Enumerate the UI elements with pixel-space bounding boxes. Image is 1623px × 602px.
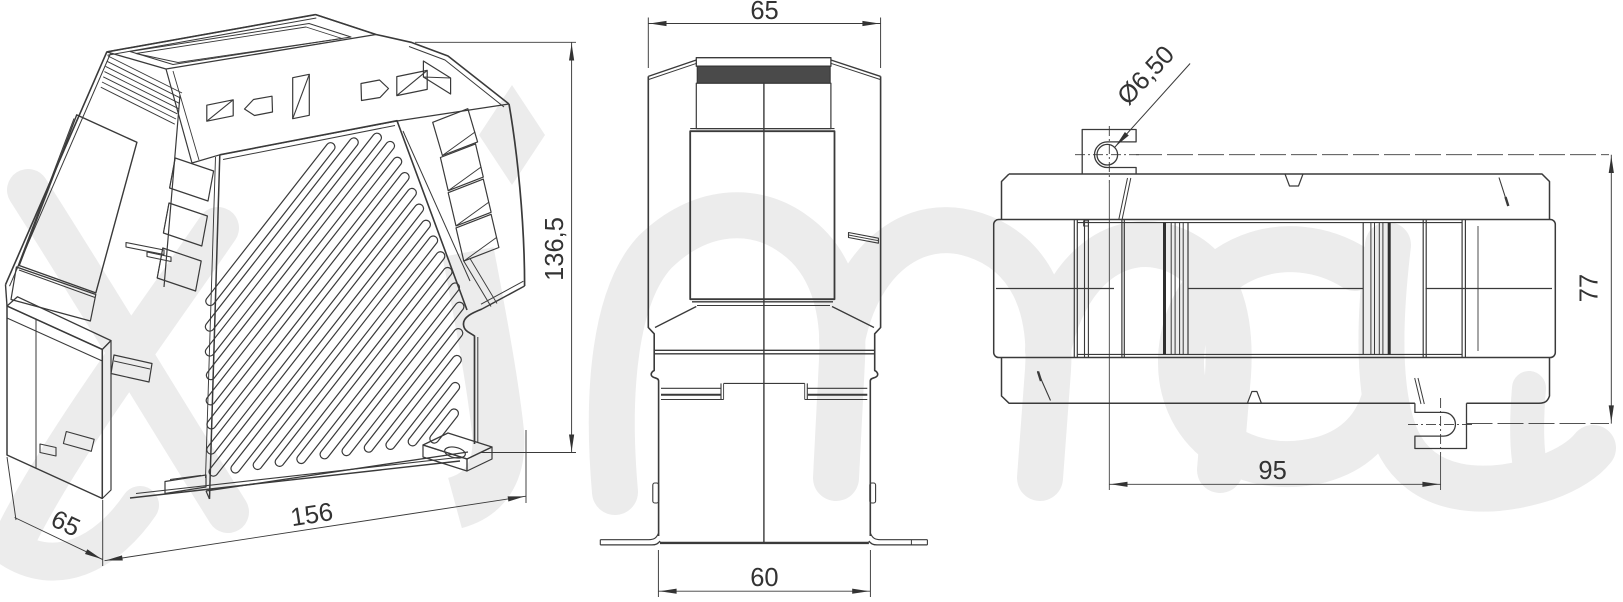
svg-text:65: 65 bbox=[750, 0, 778, 25]
svg-text:77: 77 bbox=[1576, 274, 1604, 302]
svg-text:136,5: 136,5 bbox=[541, 217, 569, 281]
svg-text:60: 60 bbox=[750, 564, 778, 592]
svg-text:95: 95 bbox=[1258, 457, 1286, 485]
